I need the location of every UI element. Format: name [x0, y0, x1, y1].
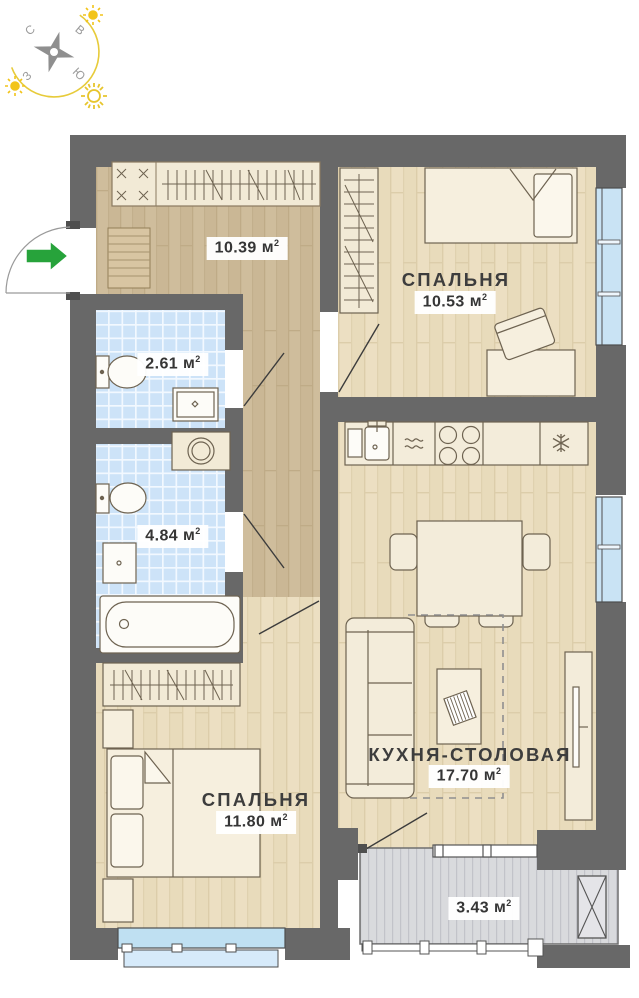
- compass-west-label: З: [19, 68, 34, 83]
- balcony-items: [578, 876, 606, 938]
- bathroom-sink: [103, 543, 136, 583]
- window-bedroom1: [596, 188, 622, 345]
- sun-icon: [83, 5, 103, 25]
- bathroom-toilet: [96, 483, 146, 513]
- bedroom1-wardrobe: [340, 168, 378, 313]
- entry-door: [6, 221, 150, 300]
- wc-sink: [173, 388, 218, 421]
- dining-table: [417, 521, 522, 616]
- compass-east-label: В: [72, 22, 87, 38]
- floor-plan: С В З Ю: [0, 0, 639, 998]
- washing-machine: [172, 432, 230, 470]
- nightstand: [103, 710, 133, 748]
- sun-icon: [5, 76, 25, 96]
- window-bedroom2: [118, 928, 285, 967]
- tv-stand: [565, 652, 592, 820]
- compass-north-label: С: [22, 22, 38, 39]
- sun-icon: [81, 83, 107, 109]
- desk: [487, 350, 575, 396]
- kitchen-counter: [345, 421, 588, 465]
- bedroom2-wardrobe: [103, 663, 240, 706]
- entry-rug: [108, 228, 150, 288]
- compass: С В З Ю: [5, 5, 107, 109]
- floor-plan-drawing: С В З Ю: [0, 0, 639, 998]
- coffee-table: [437, 669, 481, 744]
- single-bed: [425, 168, 577, 243]
- sofa: [346, 618, 414, 798]
- wc-toilet: [96, 356, 146, 388]
- double-bed: [107, 749, 260, 877]
- bathtub: [100, 596, 240, 653]
- tv: [573, 687, 579, 767]
- hallway-wardrobe: [112, 162, 320, 206]
- entry-arrow-icon: [26, 241, 68, 271]
- window-kitchen: [596, 497, 622, 602]
- balcony-sill: [433, 845, 537, 857]
- nightstand: [103, 879, 133, 922]
- compass-center: [50, 48, 58, 56]
- compass-south-label: Ю: [70, 65, 88, 83]
